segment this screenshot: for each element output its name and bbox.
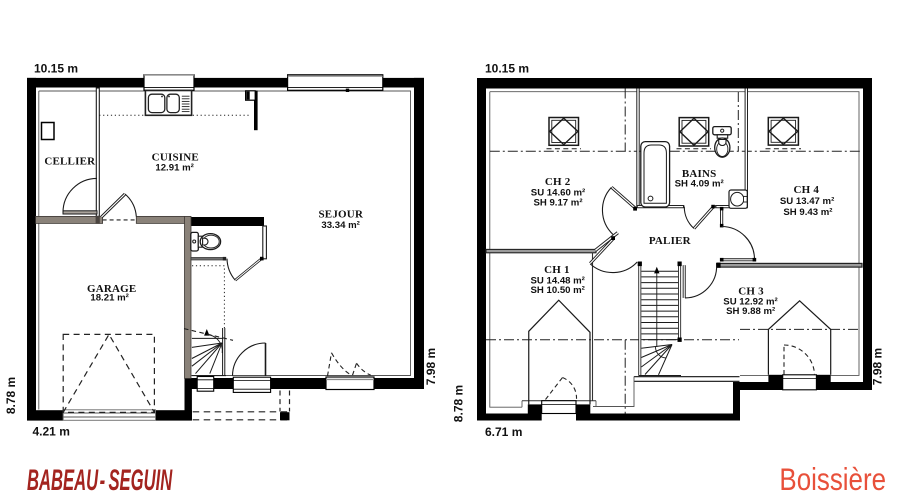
svg-text:BABEAU - SEGUIN: BABEAU - SEGUIN — [27, 464, 173, 497]
svg-text:CH 2: CH 2 — [545, 176, 571, 188]
svg-text:SH 9.43 m²: SH 9.43 m² — [783, 207, 832, 218]
svg-text:PALIER: PALIER — [649, 235, 692, 247]
svg-text:CELLIER: CELLIER — [44, 156, 96, 168]
svg-text:33.34 m²: 33.34 m² — [321, 220, 359, 231]
svg-text:SH 9.88 m²: SH 9.88 m² — [726, 306, 775, 317]
svg-text:8.78 m: 8.78 m — [452, 385, 466, 422]
svg-text:SU 13.47 m²: SU 13.47 m² — [780, 196, 834, 207]
svg-text:12.91 m²: 12.91 m² — [155, 163, 193, 174]
svg-text:7.98 m: 7.98 m — [871, 348, 885, 385]
svg-text:SEJOUR: SEJOUR — [318, 209, 363, 221]
svg-text:7.98 m: 7.98 m — [424, 348, 438, 385]
svg-text:SH 9.17 m²: SH 9.17 m² — [533, 197, 582, 208]
svg-text:SH 10.50 m²: SH 10.50 m² — [530, 285, 584, 296]
svg-text:Boissière: Boissière — [779, 463, 886, 498]
svg-text:CH 4: CH 4 — [794, 184, 820, 196]
svg-text:SH 4.09 m²: SH 4.09 m² — [675, 179, 724, 190]
svg-text:18.21 m²: 18.21 m² — [90, 293, 128, 304]
svg-text:10.15 m: 10.15 m — [485, 62, 529, 76]
svg-text:4.21 m: 4.21 m — [33, 425, 70, 439]
svg-text:8.78 m: 8.78 m — [4, 377, 18, 414]
svg-text:CUISINE: CUISINE — [152, 151, 199, 163]
svg-text:6.71 m: 6.71 m — [485, 425, 522, 439]
svg-text:10.15 m: 10.15 m — [34, 62, 78, 76]
svg-text:CH 1: CH 1 — [544, 264, 570, 276]
